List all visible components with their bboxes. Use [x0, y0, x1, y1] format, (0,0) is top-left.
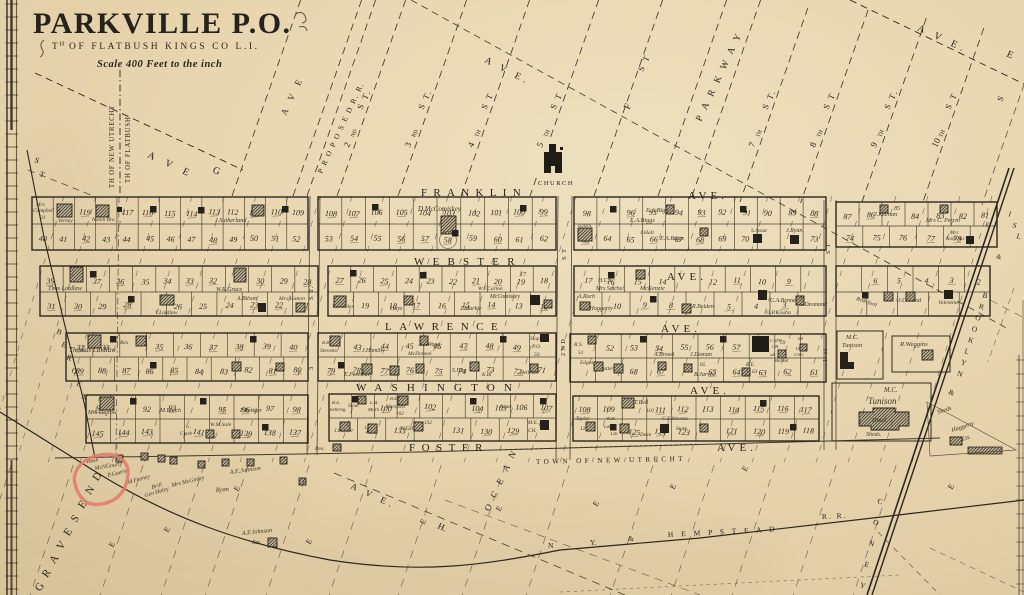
svg-text:J.Hall: J.Hall	[640, 230, 654, 236]
svg-text:CH.: CH.	[772, 344, 780, 349]
svg-text:112: 112	[677, 404, 689, 414]
svg-text:ST: ST	[824, 348, 829, 354]
svg-text:120: 120	[753, 426, 766, 436]
svg-text:E.A.Biggs: E.A.Biggs	[629, 217, 655, 224]
svg-text:T: T	[52, 42, 58, 52]
svg-text:39: 39	[261, 342, 271, 352]
svg-text:35: 35	[140, 277, 149, 286]
svg-text:TH OF FLATBUSH: TH OF FLATBUSH	[125, 116, 132, 183]
svg-text:19: 19	[516, 277, 525, 287]
svg-text:76: 76	[406, 366, 415, 376]
svg-text:125: 125	[628, 427, 641, 437]
svg-text:73: 73	[810, 234, 819, 244]
svg-text:98: 98	[582, 209, 591, 219]
svg-text:P.Rettger: P.Rettger	[239, 408, 263, 414]
svg-text:A.Roch: A.Roch	[577, 294, 595, 300]
svg-text:behring: behring	[330, 408, 346, 413]
svg-text:92: 92	[718, 207, 727, 217]
svg-text:J.Ryan: J.Ryan	[786, 228, 802, 234]
svg-text:109: 109	[292, 208, 305, 218]
svg-text:Mrs Hutton: Mrs Hutton	[278, 296, 305, 302]
svg-text:76: 76	[899, 233, 908, 243]
svg-text:145: 145	[91, 429, 104, 439]
svg-text:95: 95	[218, 405, 226, 414]
svg-text:4: 4	[924, 276, 929, 285]
svg-text:CH.: CH.	[528, 428, 537, 434]
svg-text:L.B.: L.B.	[369, 401, 378, 406]
svg-text:Morn: Morn	[367, 408, 380, 413]
svg-text:S.Stout: S.Stout	[751, 228, 767, 234]
svg-text:68: 68	[696, 235, 705, 245]
svg-text:83: 83	[219, 367, 228, 377]
svg-text:31: 31	[46, 302, 55, 311]
svg-text:45: 45	[406, 341, 414, 350]
svg-text:48: 48	[485, 341, 493, 350]
svg-text:54: 54	[350, 234, 358, 243]
svg-text:30: 30	[255, 276, 264, 285]
svg-text:WASHINGTON: WASHINGTON	[356, 382, 521, 394]
svg-text:53: 53	[630, 343, 638, 352]
svg-text:M.C.: M.C.	[845, 334, 858, 341]
svg-text:32: 32	[208, 276, 218, 286]
svg-text:82: 82	[959, 212, 967, 221]
svg-text:2 N D: 2 N D	[561, 339, 567, 356]
svg-text:H.C.T.: H.C.T.	[597, 278, 613, 284]
svg-text:61: 61	[515, 235, 524, 245]
svg-text:T.Laidlaw: T.Laidlaw	[155, 310, 178, 316]
svg-text:Store: Store	[676, 426, 688, 432]
svg-text:SCHOOL: SCHOOL	[578, 224, 592, 228]
svg-text:McComiskey: McComiskey	[489, 294, 520, 300]
svg-text:119: 119	[79, 207, 91, 217]
svg-text:26: 26	[357, 275, 366, 285]
svg-text:Res: Res	[119, 340, 128, 346]
svg-text:OF FLATBUSH KINGS CO L.I.: OF FLATBUSH KINGS CO L.I.	[69, 42, 260, 52]
svg-text:J.Doman: J.Doman	[690, 352, 712, 358]
svg-text:58: 58	[443, 235, 452, 245]
svg-text:36: 36	[115, 277, 125, 287]
svg-text:K.B.: K.B.	[481, 372, 491, 378]
svg-text:25: 25	[199, 302, 207, 311]
svg-text:10: 10	[758, 277, 767, 287]
svg-text:19: 19	[361, 301, 369, 310]
svg-text:W.H.: W.H.	[606, 417, 616, 422]
svg-text:13: 13	[514, 301, 523, 311]
svg-text:AVE.: AVE.	[667, 271, 707, 283]
svg-text:82: 82	[244, 365, 253, 375]
svg-text:35: 35	[154, 342, 164, 352]
svg-text:McDonnel: McDonnel	[407, 351, 432, 357]
svg-text:48: 48	[209, 235, 218, 245]
svg-text:63: 63	[752, 369, 758, 375]
svg-text:29: 29	[280, 277, 288, 286]
svg-text:12: 12	[709, 277, 718, 287]
svg-text:W.R.Grace: W.R.Grace	[216, 287, 242, 293]
svg-text:Tunison: Tunison	[868, 396, 897, 406]
svg-text:85: 85	[894, 206, 900, 212]
svg-text:D.McComiskey: D.McComiskey	[417, 205, 462, 213]
svg-text:85: 85	[170, 366, 179, 376]
svg-text:24: 24	[225, 301, 234, 311]
svg-text:R.E.: R.E.	[389, 397, 399, 402]
svg-text:111: 111	[655, 405, 666, 415]
svg-text:AVE.: AVE.	[690, 385, 730, 397]
svg-text:41: 41	[59, 234, 68, 244]
svg-text:60: 60	[798, 337, 804, 342]
svg-text:109: 109	[602, 404, 615, 414]
svg-text:71: 71	[537, 365, 546, 375]
svg-text:69: 69	[718, 234, 726, 243]
svg-text:Scale 400 Feet to the inch: Scale 400 Feet to the inch	[97, 59, 222, 70]
svg-text:65: 65	[700, 362, 706, 368]
svg-text:AVE.: AVE.	[688, 190, 728, 202]
svg-text:H: H	[60, 41, 65, 48]
svg-text:A.Bilson: A.Bilson	[236, 296, 257, 302]
svg-text:87: 87	[122, 366, 131, 375]
svg-text:5: 5	[727, 302, 732, 311]
svg-text:Sheds.: Sheds.	[866, 432, 882, 438]
svg-text:101: 101	[490, 208, 502, 217]
svg-text:117: 117	[800, 405, 813, 415]
svg-text:9: 9	[786, 277, 791, 286]
svg-text:16: 16	[438, 301, 446, 310]
svg-text:R.E.: R.E.	[331, 401, 341, 406]
svg-text:58: 58	[770, 353, 776, 358]
svg-text:56: 56	[705, 342, 714, 352]
svg-text:Y.: Y.	[590, 538, 596, 547]
svg-text:68: 68	[629, 367, 638, 377]
svg-text:Stout: Stout	[348, 403, 359, 409]
svg-text:W.F.Carton: W.F.Carton	[478, 286, 503, 292]
svg-text:Nolon Bro: Nolon Bro	[91, 217, 115, 223]
svg-text:6: 6	[873, 276, 878, 285]
svg-text:110: 110	[271, 207, 283, 216]
svg-text:62: 62	[783, 367, 792, 377]
svg-text:104: 104	[471, 404, 484, 414]
svg-text:49: 49	[229, 235, 237, 244]
svg-text:40: 40	[289, 342, 298, 352]
svg-text:99: 99	[540, 207, 548, 216]
svg-text:Tunison: Tunison	[842, 342, 862, 349]
svg-text:Mrs Satchel: Mrs Satchel	[595, 286, 624, 292]
svg-text:116: 116	[777, 404, 789, 414]
svg-text:114: 114	[728, 405, 740, 415]
svg-text:10: 10	[613, 302, 622, 312]
svg-text:30: 30	[73, 302, 83, 312]
svg-text:M.E.: M.E.	[527, 420, 538, 426]
svg-text:Market: Market	[773, 359, 789, 364]
svg-text:131: 131	[452, 425, 465, 435]
svg-text:53: 53	[325, 234, 333, 243]
svg-text:44: 44	[122, 235, 131, 245]
svg-text:R.Weggins: R.Weggins	[899, 341, 928, 348]
svg-text:T.Bell: T.Bell	[634, 399, 649, 406]
svg-text:66: 66	[650, 235, 658, 244]
svg-text:Isaac: Isaac	[499, 404, 513, 410]
svg-text:50: 50	[534, 352, 540, 358]
svg-text:92: 92	[143, 405, 152, 414]
svg-text:105: 105	[396, 208, 408, 217]
svg-text:126: 126	[610, 432, 618, 437]
svg-text:Stevens: Stevens	[320, 348, 337, 354]
svg-text:R. R.: R. R.	[822, 511, 848, 521]
svg-text:70: 70	[741, 234, 749, 243]
svg-text:88: 88	[98, 366, 107, 376]
svg-text:34: 34	[162, 276, 172, 286]
svg-text:106: 106	[515, 403, 527, 412]
svg-text:115: 115	[164, 209, 176, 218]
svg-text:R.S.: R.S.	[573, 342, 583, 348]
svg-text:75: 75	[872, 233, 881, 243]
svg-text:Clark: Clark	[180, 431, 193, 437]
svg-text:Edges: Edges	[579, 360, 593, 366]
svg-text:21: 21	[472, 276, 480, 285]
svg-text:84: 84	[911, 212, 919, 221]
svg-text:63: 63	[758, 368, 766, 377]
svg-text:Verney: Verney	[58, 218, 73, 224]
svg-text:A.Browd: A.Browd	[653, 352, 674, 358]
svg-text:3: 3	[308, 367, 315, 370]
svg-text:5: 5	[897, 276, 902, 285]
svg-text:36: 36	[183, 342, 193, 352]
svg-text:S T.: S T.	[308, 286, 315, 300]
svg-text:81: 81	[981, 211, 990, 221]
svg-text:51: 51	[578, 350, 584, 356]
svg-text:O.P.Kissbn: O.P.Kissbn	[766, 310, 791, 316]
svg-text:M.C.: M.C.	[883, 387, 898, 394]
svg-text:J.Sutherland: J.Sutherland	[215, 217, 247, 224]
svg-text:McKenzie: McKenzie	[639, 285, 665, 292]
svg-text:S T: S T	[561, 248, 568, 260]
svg-text:62: 62	[539, 234, 548, 244]
svg-text:B.Jarvis: B.Jarvis	[694, 372, 714, 378]
svg-text:M.Burch: M.Burch	[159, 408, 181, 414]
svg-text:59: 59	[780, 340, 786, 346]
svg-text:130: 130	[480, 427, 493, 437]
svg-text:J.Markle: J.Markle	[460, 306, 482, 312]
svg-text:64: 64	[603, 234, 612, 244]
svg-text:75: 75	[434, 367, 443, 377]
svg-text:Hays: Hays	[389, 306, 403, 312]
svg-text:Res.: Res.	[314, 446, 324, 452]
svg-text:93: 93	[697, 208, 705, 217]
svg-text:24: 24	[405, 276, 414, 286]
svg-text:Ryan: Ryan	[214, 486, 229, 494]
svg-text:65: 65	[626, 235, 635, 245]
svg-text:18: 18	[540, 276, 549, 285]
svg-text:1: 1	[822, 359, 829, 362]
svg-text:Taylor: Taylor	[576, 416, 590, 422]
svg-text:47: 47	[187, 235, 196, 244]
svg-text:113: 113	[208, 207, 220, 217]
svg-text:Dean: Dean	[639, 432, 652, 438]
svg-text:Hotel: Hotel	[871, 417, 887, 424]
svg-text:P.O.: P.O.	[531, 344, 541, 350]
svg-text:118: 118	[802, 426, 814, 436]
svg-text:11: 11	[733, 276, 741, 285]
svg-text:55: 55	[373, 233, 382, 243]
svg-text:E.A.Biggs: E.A.Biggs	[659, 236, 685, 242]
svg-text:143: 143	[141, 427, 153, 437]
svg-text:129: 129	[507, 426, 520, 436]
svg-text:J.Hamilly: J.Hamilly	[362, 348, 385, 354]
svg-text:102: 102	[424, 402, 437, 412]
svg-text:Valentine: Valentine	[938, 300, 959, 306]
svg-text:23: 23	[426, 276, 435, 286]
svg-text:94: 94	[674, 208, 683, 218]
svg-text:20: 20	[494, 277, 502, 286]
svg-text:Mrs Lagrow: Mrs Lagrow	[87, 410, 117, 416]
svg-text:52: 52	[292, 234, 301, 244]
svg-text:113: 113	[702, 404, 714, 414]
svg-text:Slop: Slop	[530, 336, 540, 342]
svg-text:59: 59	[469, 233, 478, 243]
svg-text:R.B.: R.B.	[321, 341, 331, 346]
svg-text:112: 112	[227, 207, 239, 217]
svg-text:121: 121	[725, 426, 737, 435]
svg-text:139: 139	[240, 428, 253, 438]
svg-text:64: 64	[732, 367, 741, 377]
svg-text:Univ: Univ	[794, 353, 804, 358]
svg-text:52: 52	[606, 343, 615, 353]
svg-text:Campbell: Campbell	[33, 208, 54, 214]
svg-text:C.E.Stevens: C.E.Stevens	[662, 416, 688, 422]
svg-text:14: 14	[487, 300, 496, 309]
svg-text:S T: S T	[826, 243, 832, 254]
svg-text:33: 33	[184, 276, 194, 286]
svg-text:28: 28	[303, 277, 311, 286]
svg-text:60: 60	[493, 235, 501, 244]
svg-text:N: N	[548, 541, 554, 550]
svg-text:89: 89	[788, 208, 796, 217]
svg-text:90: 90	[763, 208, 772, 218]
svg-text:PARKVILLE P.O.: PARKVILLE P.O.	[33, 7, 292, 40]
svg-text:40: 40	[38, 234, 47, 244]
svg-text:141: 141	[192, 427, 205, 437]
svg-text:TH OF NEW UTRECHT: TH OF NEW UTRECHT	[109, 105, 116, 188]
svg-text:Mrs C. Perrin: Mrs C. Perrin	[925, 218, 960, 224]
svg-text:LAWRENCE: LAWRENCE	[385, 321, 505, 333]
svg-text:43: 43	[102, 235, 110, 244]
svg-text:119: 119	[777, 427, 789, 437]
svg-text:CHURCH: CHURCH	[538, 180, 574, 187]
svg-text:108: 108	[325, 209, 337, 219]
svg-text:102: 102	[396, 411, 404, 417]
svg-text:Thos Laidlaw: Thos Laidlaw	[48, 285, 83, 292]
svg-text:144: 144	[117, 428, 130, 438]
svg-text:102: 102	[468, 208, 481, 218]
svg-text:29: 29	[98, 302, 107, 312]
svg-text:55: 55	[680, 342, 689, 352]
svg-text:46: 46	[166, 234, 175, 244]
svg-text:W.M.Sale: W.M.Sale	[210, 422, 232, 428]
svg-text:38: 38	[234, 342, 244, 352]
svg-text:132: 132	[424, 420, 432, 426]
svg-text:108: 108	[578, 405, 590, 415]
svg-text:49: 49	[512, 343, 521, 353]
svg-text:C.A.Benner: C.A.Benner	[770, 298, 799, 304]
svg-text:80: 80	[293, 365, 302, 375]
svg-text:50: 50	[250, 234, 258, 243]
svg-text:110: 110	[646, 408, 654, 414]
